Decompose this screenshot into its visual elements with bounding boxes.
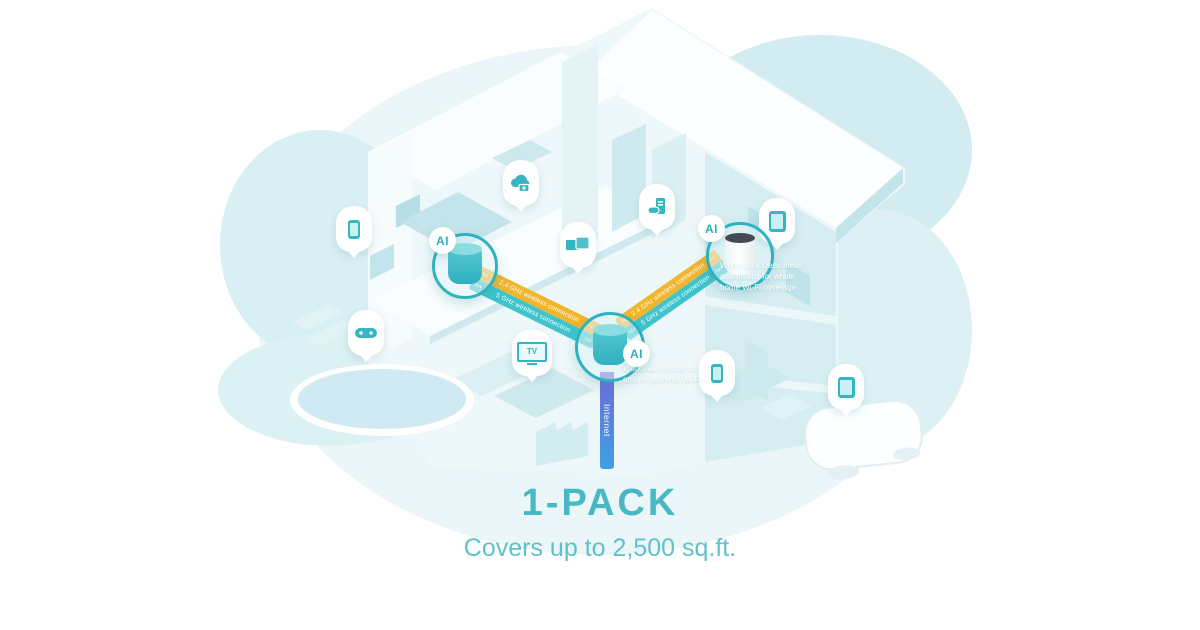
smartphone-icon xyxy=(348,220,360,239)
gamepad-icon xyxy=(355,326,377,340)
gaming-pc-icon xyxy=(647,197,667,217)
gaming-pc-pin xyxy=(639,184,675,230)
tablet-icon xyxy=(838,377,855,398)
cloud-camera-pin xyxy=(503,160,539,206)
tv-icon: TV xyxy=(517,342,547,365)
ai-badge-label: AI xyxy=(436,234,449,248)
deco-cylinder-icon xyxy=(593,329,627,365)
caption-block: 1-PACK Covers up to 2,500 sq.ft. xyxy=(0,482,1200,563)
tv-pin: TV xyxy=(512,330,552,376)
dual-monitor-pin xyxy=(560,222,596,268)
ai-badge-center: AI xyxy=(623,340,650,367)
tablet-icon xyxy=(769,211,786,232)
ai-badge-right: AI xyxy=(698,215,725,242)
cloud-camera-icon xyxy=(508,174,534,193)
tablet-pin-lower xyxy=(828,364,864,410)
smartphone-icon xyxy=(711,364,723,383)
product-hero: ››› 2.4 GHz wireless connection ››› ››› … xyxy=(0,0,1200,630)
ai-badge-left: AI xyxy=(429,227,456,254)
dual-monitor-icon xyxy=(565,236,591,254)
gamepad-pin xyxy=(348,310,384,356)
ai-badge-label: AI xyxy=(630,347,643,361)
deco-cylinder-icon xyxy=(448,248,482,284)
ai-badge-label: AI xyxy=(705,222,718,236)
smartphone-pin xyxy=(336,206,372,252)
pack-title: 1-PACK xyxy=(0,482,1200,525)
coverage-subtitle: Covers up to 2,500 sq.ft. xyxy=(0,534,1200,563)
internet-label: Internet xyxy=(602,404,612,437)
addon-annotation: Works as a Deco mesh add-on unit for who… xyxy=(720,260,816,294)
internet-line: Internet xyxy=(600,372,614,469)
tv-label: TV xyxy=(527,347,537,356)
